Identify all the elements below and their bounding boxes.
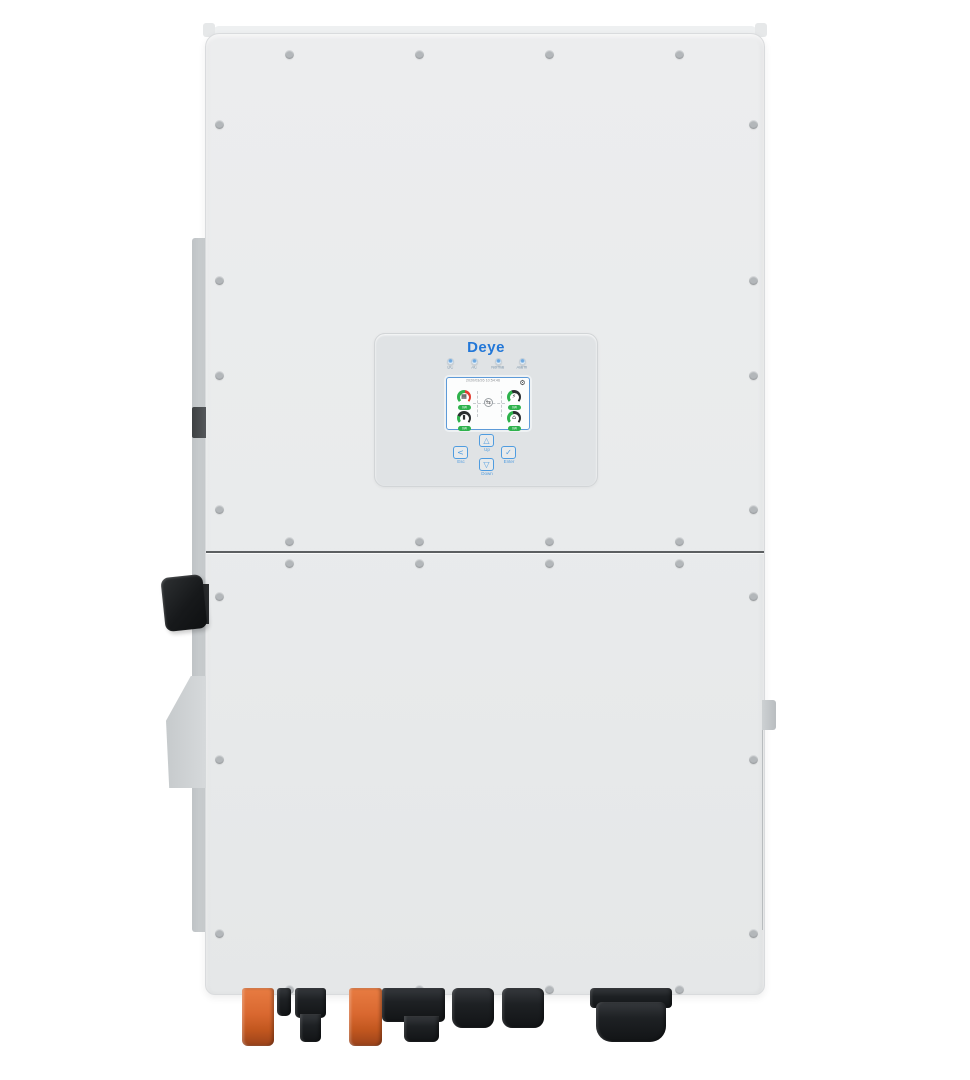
left-mount-bracket — [166, 676, 206, 788]
load-value: 0W — [512, 427, 517, 430]
screw — [215, 120, 224, 129]
normal-led-label: Normal — [491, 366, 504, 370]
screw — [749, 371, 758, 380]
screw — [749, 120, 758, 129]
screw — [285, 537, 294, 546]
screw — [749, 755, 758, 764]
screw — [545, 985, 554, 994]
screw — [215, 592, 224, 601]
esc-button[interactable]: < — [453, 446, 468, 459]
flow-line-left — [477, 391, 478, 417]
enter-button[interactable]: ✓ — [501, 446, 516, 459]
alarm-led-light — [519, 358, 526, 365]
screw — [215, 371, 224, 380]
screw — [285, 559, 294, 568]
led-normal: Normal — [486, 358, 510, 372]
screw — [215, 276, 224, 285]
screw — [215, 755, 224, 764]
screw — [675, 559, 684, 568]
normal-led-light — [495, 358, 502, 365]
left-side-port — [192, 407, 206, 438]
inverter-body: Deye DC AC Normal Alarm — [205, 33, 765, 995]
screw — [675, 985, 684, 994]
product-screenshot: { "product": { "brand": "Deye", "descrip… — [0, 0, 970, 1080]
pv-connector-cluster-tip — [404, 1016, 439, 1042]
battery-terminal-1 — [242, 988, 274, 1046]
load-value-badge: 0W — [508, 426, 521, 431]
screw — [749, 505, 758, 514]
ac-cable-gland — [596, 1002, 666, 1042]
grid-gauge-ring: ⚡ — [507, 390, 521, 404]
load-gauge-ring: ⌂ — [507, 411, 521, 425]
screw — [215, 505, 224, 514]
screw — [749, 929, 758, 938]
load-icon: ⌂ — [510, 414, 519, 423]
screw — [749, 276, 758, 285]
esc-button-label: Esc — [450, 460, 473, 465]
screw — [675, 50, 684, 59]
down-button-label: Down — [476, 472, 499, 477]
up-button-label: Up — [476, 448, 499, 453]
pv-gauge: ▦ 0W — [454, 390, 474, 410]
enclosure-seam — [206, 551, 764, 553]
battery-gauge: ▮ 0W — [454, 411, 474, 431]
down-button[interactable]: ▽ — [479, 458, 494, 471]
dc-led-light — [447, 358, 454, 365]
ac-led-label: AC — [471, 366, 477, 370]
ac-led-light — [471, 358, 478, 365]
right-edge-seam — [762, 730, 763, 930]
grid-icon: ⚡ — [510, 393, 519, 402]
screw — [545, 559, 554, 568]
screw — [545, 50, 554, 59]
screw — [675, 537, 684, 546]
up-button-glyph: △ — [483, 437, 489, 445]
display-panel: Deye DC AC Normal Alarm — [374, 333, 598, 487]
esc-button-glyph: < — [457, 449, 464, 457]
com-cable-gland-1 — [452, 988, 494, 1028]
dc-switch[interactable] — [160, 574, 207, 632]
battery-icon: ▮ — [460, 414, 469, 423]
screw — [545, 537, 554, 546]
mc4-connector-1-tip — [300, 1014, 321, 1042]
alarm-led-label: Alarm — [517, 366, 528, 370]
pv-gauge-ring: ▦ — [457, 390, 471, 404]
enter-button-label: Enter — [498, 460, 521, 465]
brand-logo: Deye — [375, 339, 597, 356]
battery-value-badge: 0W — [458, 426, 471, 431]
flow-line-right — [501, 391, 502, 417]
screen-datetime: 2020/03/26 10:54:46 — [461, 379, 506, 383]
pv-icon: ▦ — [460, 393, 469, 402]
right-hinge-tab — [762, 700, 776, 730]
led-dc: DC — [438, 358, 462, 372]
grid-value-badge: 0W — [508, 405, 521, 410]
battery-terminal-2 — [349, 988, 382, 1046]
settings-gear-icon[interactable]: ⚙ — [519, 380, 526, 387]
load-gauge: ⌂ 0W — [504, 411, 524, 431]
mc4-stub-connector — [277, 988, 291, 1016]
pv-value-badge: 0W — [458, 405, 471, 410]
lcd-screen: 2020/03/26 10:54:46 ⚙ ▦ 0W ⚡ — [446, 377, 530, 430]
down-button-glyph: ▽ — [483, 461, 489, 469]
screw — [415, 50, 424, 59]
screw — [285, 50, 294, 59]
up-button[interactable]: △ — [479, 434, 494, 447]
dc-led-label: DC — [447, 366, 453, 370]
screw — [415, 559, 424, 568]
pv-value: 0W — [462, 406, 467, 409]
status-led-row: DC AC Normal Alarm — [438, 358, 534, 372]
led-alarm: Alarm — [510, 358, 534, 372]
grid-gauge: ⚡ 0W — [504, 390, 524, 410]
inverter-node-icon: ⇆ — [484, 398, 493, 407]
battery-gauge-ring: ▮ — [457, 411, 471, 425]
com-cable-gland-2 — [502, 988, 544, 1028]
screw — [749, 592, 758, 601]
screw — [415, 537, 424, 546]
grid-value: 0W — [512, 406, 517, 409]
battery-value: 0W — [462, 427, 467, 430]
enter-button-glyph: ✓ — [505, 449, 512, 457]
screw — [215, 929, 224, 938]
led-ac: AC — [462, 358, 486, 372]
